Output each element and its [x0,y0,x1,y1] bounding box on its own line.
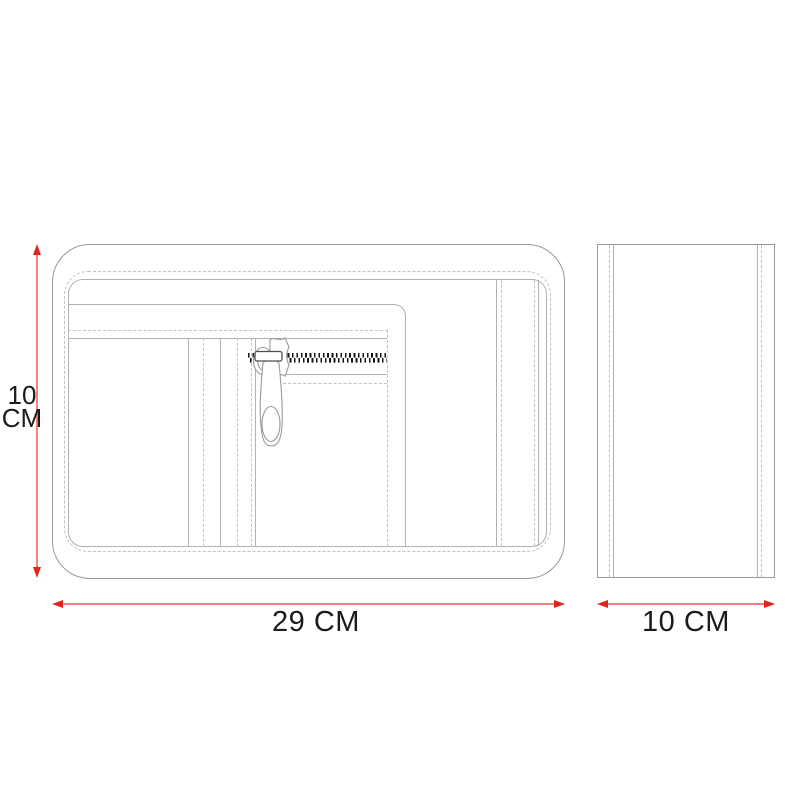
arrow-right-icon [554,600,565,608]
side-view-outline [597,244,775,578]
zipper-pull-hole [262,407,280,442]
zipper-slider-icon [250,335,294,451]
gusset-stitch-line [501,280,502,546]
slot-divider-stitch [237,338,238,547]
gusset-edge-line [496,280,497,546]
side-view-stitch-right [761,245,762,577]
slot-divider-line [220,338,221,547]
slot-panel-top-edge [68,338,387,339]
height-unit: CM [0,407,44,430]
slot-divider-stitch [203,338,204,547]
front-height-dimension-label: 10 CM [0,384,44,430]
side-width-dimension-label: 10 CM [586,606,786,639]
front-width-dimension-label: 29 CM [216,606,416,639]
side-view-edge-right [757,245,758,577]
front-width-dimension-line [56,603,561,605]
zipper-slider-bar [255,352,282,362]
arrow-down-icon [33,567,41,578]
slot-divider-line [188,338,189,547]
gusset-edge-line [538,280,539,546]
technical-drawing-canvas: 10 CM 29 CM 10 CM [0,0,800,800]
arrow-left-icon [52,600,63,608]
side-width-dimension-line [601,603,771,605]
side-view-edge-left [613,245,614,577]
side-view-stitch-left [609,245,610,577]
zipper-tape-edge [278,374,387,375]
gusset-stitch-line [534,280,535,546]
arrow-up-icon [33,244,41,255]
